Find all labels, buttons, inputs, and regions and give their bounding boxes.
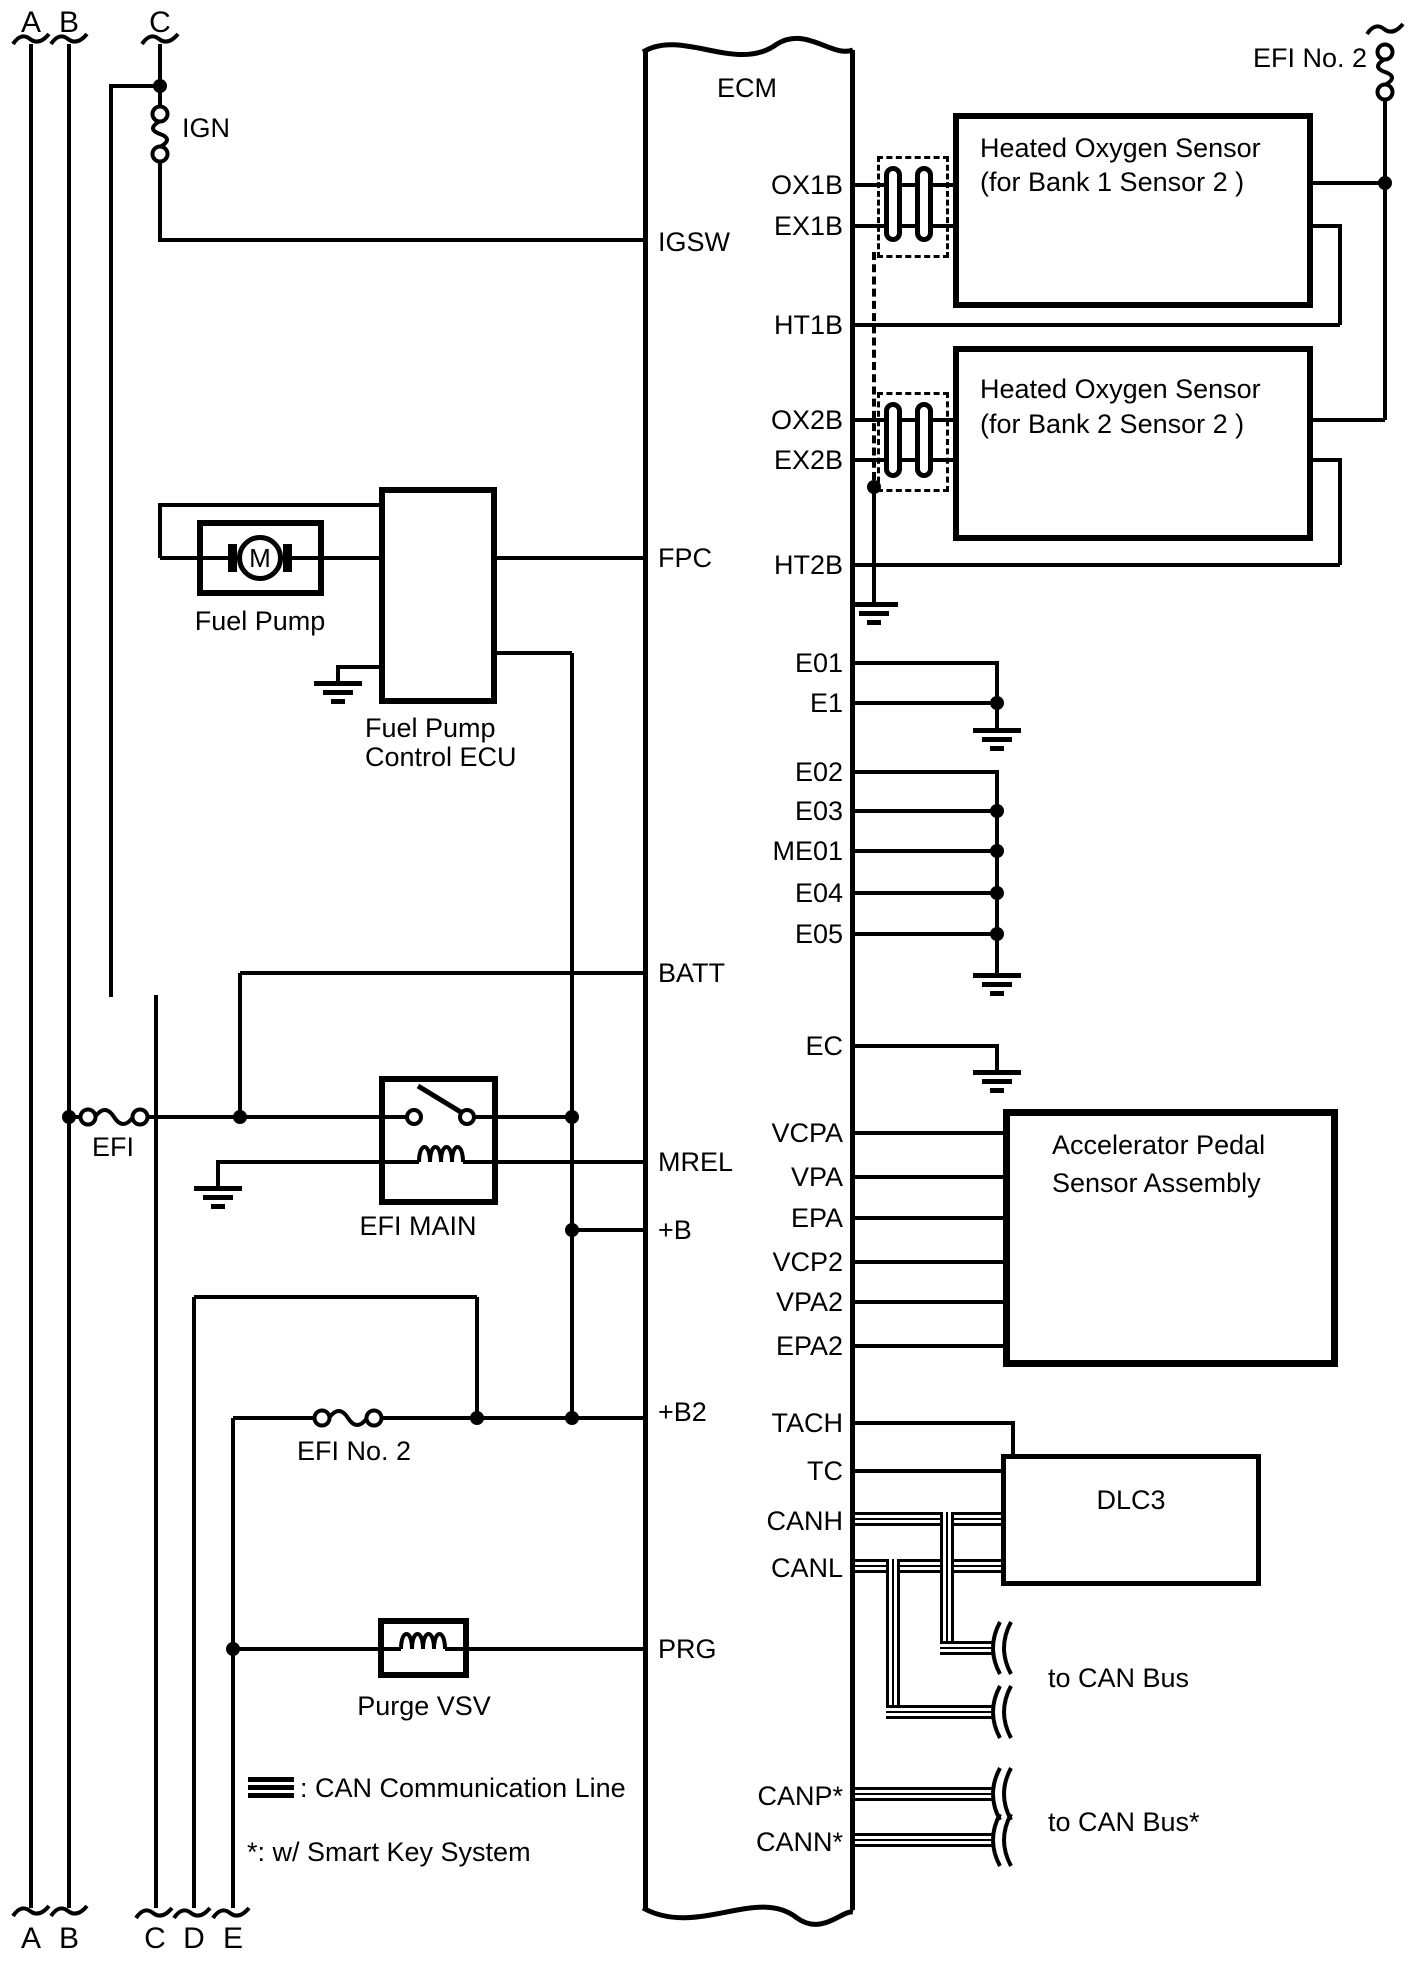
ground-symbol [194, 1186, 242, 1210]
wire [852, 770, 997, 774]
pin-label-epa2: EPA2 [776, 1332, 843, 1360]
wire [572, 1228, 645, 1232]
wire [496, 651, 572, 655]
wire [1312, 181, 1385, 185]
pin-label-canp: CANP* [757, 1782, 843, 1810]
wire [852, 809, 997, 813]
pin-label-fpc: FPC [658, 544, 712, 572]
wire [148, 1115, 408, 1119]
pin-label-e05: E05 [795, 920, 843, 948]
wire [67, 44, 71, 1908]
fuse-efi-no2-label: EFI No. 2 [297, 1437, 411, 1465]
can-break-symbol [988, 1619, 1014, 1677]
wire [338, 665, 379, 669]
ecm-left-edge [643, 50, 648, 1910]
relay-contact [458, 1108, 476, 1126]
wire [852, 932, 997, 936]
junction-dot [867, 480, 881, 494]
ecm-torn-bottom-edge [637, 1886, 859, 1938]
ground-symbol [850, 602, 898, 626]
can-break-symbol [988, 1683, 1014, 1741]
pin-label-ox1b: OX1B [771, 171, 843, 199]
motor-brush [228, 544, 237, 572]
wire [154, 995, 158, 1908]
wire [160, 503, 379, 507]
can-line [886, 1705, 993, 1719]
pin-label-e02: E02 [795, 758, 843, 786]
connector-symbol [884, 402, 902, 478]
pin-label-canh: CANH [766, 1507, 843, 1535]
wire [852, 1216, 1003, 1220]
accel-pedal-label-1: Accelerator Pedal [1052, 1131, 1265, 1159]
wire [1312, 458, 1340, 462]
junction-dot [470, 1411, 484, 1425]
wire [496, 556, 645, 560]
wire [231, 1418, 235, 1908]
wire [109, 84, 113, 997]
can-break-symbol [988, 1811, 1014, 1869]
wire [158, 238, 645, 242]
fp-control-ecu-label-2: Control ECU [365, 743, 517, 771]
pin-label-epa: EPA [791, 1204, 843, 1232]
wire [852, 323, 1340, 327]
can-line [852, 1787, 993, 1801]
pin-label-vpa: VPA [791, 1163, 843, 1191]
to-can-bus-label: to CAN Bus [1048, 1664, 1189, 1692]
wire [1383, 100, 1387, 420]
pin-label-e04: E04 [795, 879, 843, 907]
rail-label-b-bottom: B [59, 1924, 79, 1954]
wire [1312, 224, 1340, 228]
wire [995, 770, 999, 975]
junction-dot [565, 1411, 579, 1425]
wire [570, 653, 574, 1418]
ecm-title: ECM [717, 74, 777, 102]
rail-label-b-top: B [59, 8, 79, 38]
wire [240, 971, 645, 975]
can-line [940, 1512, 954, 1655]
ho2s-bank2-label-1: Heated Oxygen Sensor [980, 375, 1261, 403]
rail-label-c-bottom: C [144, 1924, 166, 1954]
wire [158, 503, 162, 558]
rail-label-c-top: C [149, 8, 171, 38]
fuse-efi-no2-top-symbol [1367, 44, 1403, 100]
connector-symbol [915, 166, 933, 242]
ground-symbol [314, 681, 362, 705]
wire [380, 1416, 645, 1420]
efi-main-label: EFI MAIN [359, 1212, 476, 1240]
wire [233, 1416, 314, 1420]
relay-contact [405, 1108, 423, 1126]
motor-brush [283, 544, 292, 572]
pin-label-plusb: +B [658, 1216, 692, 1244]
pin-label-vpa2: VPA2 [776, 1288, 843, 1316]
can-line [852, 1512, 1001, 1526]
wire [852, 661, 997, 665]
wire [852, 849, 997, 853]
junction-dot [565, 1110, 579, 1124]
wire [852, 1175, 1003, 1179]
wire [445, 1647, 645, 1651]
can-line-legend-swatch [248, 1777, 294, 1798]
rail-label-a-bottom: A [21, 1924, 41, 1954]
to-can-bus-star-label: to CAN Bus* [1048, 1808, 1200, 1836]
pin-label-e1: E1 [810, 689, 843, 717]
ground-symbol [973, 973, 1021, 997]
fuse-efi-symbol [80, 1099, 148, 1135]
junction-dot [990, 927, 1004, 941]
pin-label-e03: E03 [795, 797, 843, 825]
pin-label-cann: CANN* [756, 1828, 843, 1856]
wire [852, 1469, 1001, 1473]
wire [852, 891, 997, 895]
fp-control-ecu-label-1: Fuel Pump [365, 714, 496, 742]
fuse-efi-no2-top-label: EFI No. 2 [1253, 44, 1367, 72]
connector-symbol [915, 402, 933, 478]
pin-label-ex1b: EX1B [774, 212, 843, 240]
shield-drain-wire [872, 252, 876, 480]
wire [216, 1160, 220, 1188]
wire [1011, 1423, 1015, 1456]
break-symbol [49, 1902, 89, 1920]
purge-coil-symbol [399, 1623, 447, 1651]
wire [192, 1297, 196, 1908]
junction-dot [990, 804, 1004, 818]
dlc3-box [1001, 1454, 1261, 1586]
break-symbol [172, 1904, 212, 1922]
wire [1338, 458, 1342, 565]
pin-label-ec: EC [805, 1032, 843, 1060]
relay-coil-symbol [417, 1136, 465, 1164]
junction-dot [565, 1223, 579, 1237]
fuse-efi-no2-symbol [314, 1400, 382, 1436]
rail-label-a-top: A [21, 8, 41, 38]
junction-dot [990, 844, 1004, 858]
ecm-right-edge [850, 50, 855, 1910]
wire [872, 487, 876, 604]
break-symbol [1365, 20, 1405, 38]
pin-label-igsw: IGSW [658, 228, 730, 256]
pin-label-batt: BATT [658, 959, 725, 987]
wire [852, 1260, 1003, 1264]
wire [852, 701, 997, 705]
ecm-torn-top-edge [637, 28, 859, 74]
pin-label-ex2b: EX2B [774, 446, 843, 474]
wire [194, 1295, 477, 1299]
wire [158, 162, 162, 242]
smart-key-note: *: w/ Smart Key System [247, 1838, 531, 1866]
break-symbol [211, 1904, 251, 1922]
pin-label-me01: ME01 [772, 837, 843, 865]
wire [475, 1297, 479, 1418]
fuse-efi-label: EFI [92, 1133, 134, 1161]
dlc3-label: DLC3 [1096, 1486, 1165, 1514]
pin-label-tc: TC [807, 1457, 843, 1485]
junction-dot [233, 1110, 247, 1124]
wire [852, 1344, 1003, 1348]
motor-icon: M [237, 535, 283, 581]
wire [1338, 224, 1342, 325]
can-line [852, 1559, 1001, 1573]
ho2s-bank2-label-2: (for Bank 2 Sensor 2 ) [980, 410, 1244, 438]
wire [1312, 418, 1385, 422]
pin-label-ht1b: HT1B [774, 311, 843, 339]
ground-symbol [973, 728, 1021, 752]
wire [29, 44, 33, 1908]
ho2s-bank1-label-1: Heated Oxygen Sensor [980, 134, 1261, 162]
wire [995, 1044, 999, 1072]
pin-label-vcp2: VCP2 [772, 1248, 843, 1276]
break-symbol [134, 1904, 174, 1922]
junction-dot [1378, 176, 1392, 190]
can-line [852, 1833, 993, 1847]
rail-label-d-bottom: D [183, 1924, 205, 1954]
fp-control-ecu-box [379, 487, 497, 704]
pin-label-mrel: MREL [658, 1148, 733, 1176]
wire [233, 1647, 401, 1651]
pin-label-prg: PRG [658, 1635, 717, 1663]
junction-dot [990, 696, 1004, 710]
fuel-pump-label: Fuel Pump [195, 607, 326, 635]
pin-label-vcpa: VCPA [771, 1119, 843, 1147]
pin-label-plusb2: +B2 [658, 1398, 707, 1426]
rail-label-e-bottom: E [223, 1924, 243, 1954]
junction-dot [62, 1110, 76, 1124]
pin-label-e01: E01 [795, 649, 843, 677]
wire [852, 1300, 1003, 1304]
ground-symbol [973, 1070, 1021, 1094]
pin-label-ox2b: OX2B [771, 406, 843, 434]
wire [852, 563, 1340, 567]
wire [852, 1044, 997, 1048]
fuse-ign-label: IGN [182, 114, 230, 142]
pin-label-tach: TACH [772, 1409, 844, 1437]
can-line-legend-text: : CAN Communication Line [300, 1774, 626, 1802]
wire [852, 1131, 1003, 1135]
junction-dot [226, 1642, 240, 1656]
connector-symbol [884, 166, 902, 242]
break-symbol [11, 1902, 51, 1920]
ho2s-bank1-label-2: (for Bank 1 Sensor 2 ) [980, 168, 1244, 196]
wire [158, 44, 162, 106]
purge-vsv-label: Purge VSV [357, 1692, 491, 1720]
junction-dot [153, 79, 167, 93]
wire [238, 973, 242, 1119]
wire [852, 1421, 1015, 1425]
pin-label-ht2b: HT2B [774, 551, 843, 579]
can-line [940, 1641, 993, 1655]
accel-pedal-label-2: Sensor Assembly [1052, 1169, 1261, 1197]
pin-label-canl: CANL [771, 1554, 843, 1582]
wiring-diagram: A B C A B C D E [0, 0, 1421, 1961]
can-line [886, 1559, 900, 1719]
fuse-ign-symbol [142, 106, 178, 162]
junction-dot [990, 886, 1004, 900]
